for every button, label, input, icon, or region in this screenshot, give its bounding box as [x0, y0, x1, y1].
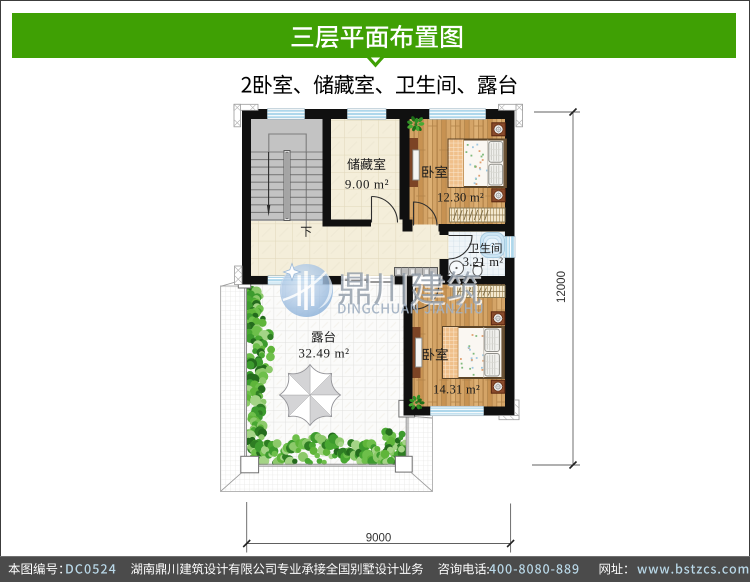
svg-text:32.49 m²: 32.49 m²	[298, 346, 349, 361]
svg-text:12.30 m²: 12.30 m²	[437, 191, 484, 205]
svg-text:9.00 m²: 9.00 m²	[345, 177, 389, 192]
svg-text:3.21 m²: 3.21 m²	[463, 255, 504, 269]
svg-text:12000: 12000	[556, 271, 568, 303]
svg-text:14.31 m²: 14.31 m²	[433, 383, 480, 397]
svg-text:9000: 9000	[366, 533, 392, 545]
